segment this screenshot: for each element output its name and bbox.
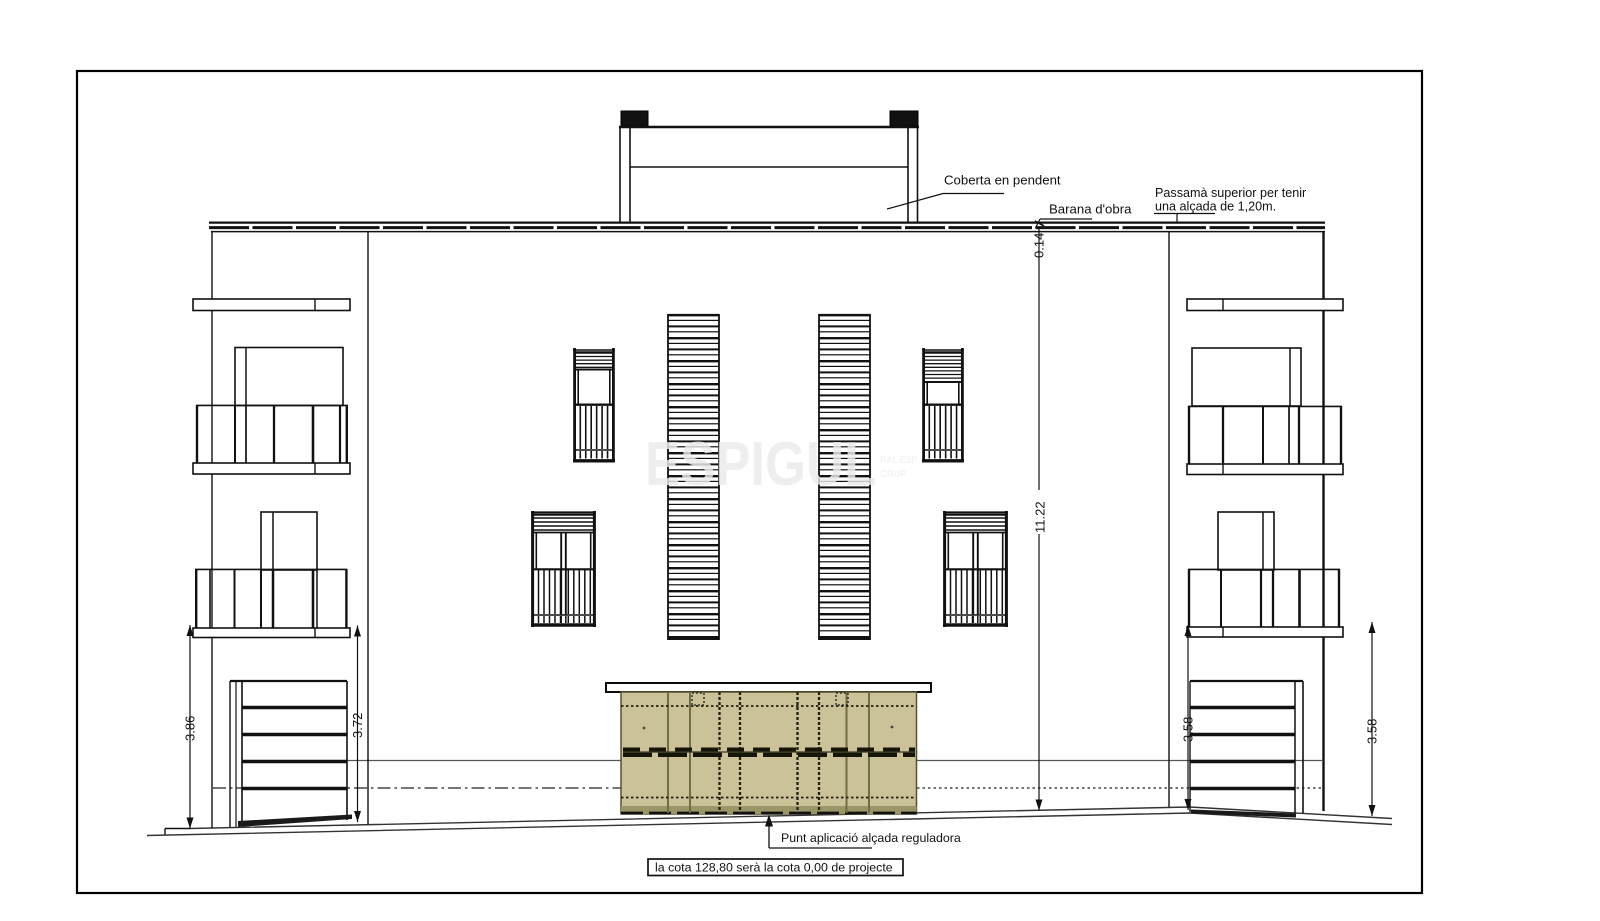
svg-text:ESPIGUL: ESPIGUL (645, 430, 876, 499)
svg-text:Passamà superior per tenir: Passamà superior per tenir (1155, 186, 1306, 200)
svg-text:11.22: 11.22 (1033, 501, 1048, 533)
svg-text:3.58: 3.58 (1181, 717, 1196, 742)
svg-text:Barana d'obra: Barana d'obra (1049, 202, 1132, 217)
svg-text:3.58: 3.58 (1365, 719, 1380, 744)
svg-text:0.14: 0.14 (1032, 233, 1047, 258)
svg-text:la cota 128,80 serà la cota 0,: la cota 128,80 serà la cota 0,00 de proj… (655, 861, 893, 875)
svg-text:Coberta en pendent: Coberta en pendent (944, 173, 1061, 188)
svg-text:Punt aplicació alçada regulado: Punt aplicació alçada reguladora (781, 831, 961, 845)
svg-text:GRUP: GRUP (880, 469, 906, 479)
svg-text:3.72: 3.72 (350, 713, 365, 738)
svg-text:3.86: 3.86 (183, 716, 198, 741)
svg-text:una alçada de 1,20m.: una alçada de 1,20m. (1155, 200, 1276, 214)
svg-text:RAL ESP: RAL ESP (880, 455, 918, 465)
